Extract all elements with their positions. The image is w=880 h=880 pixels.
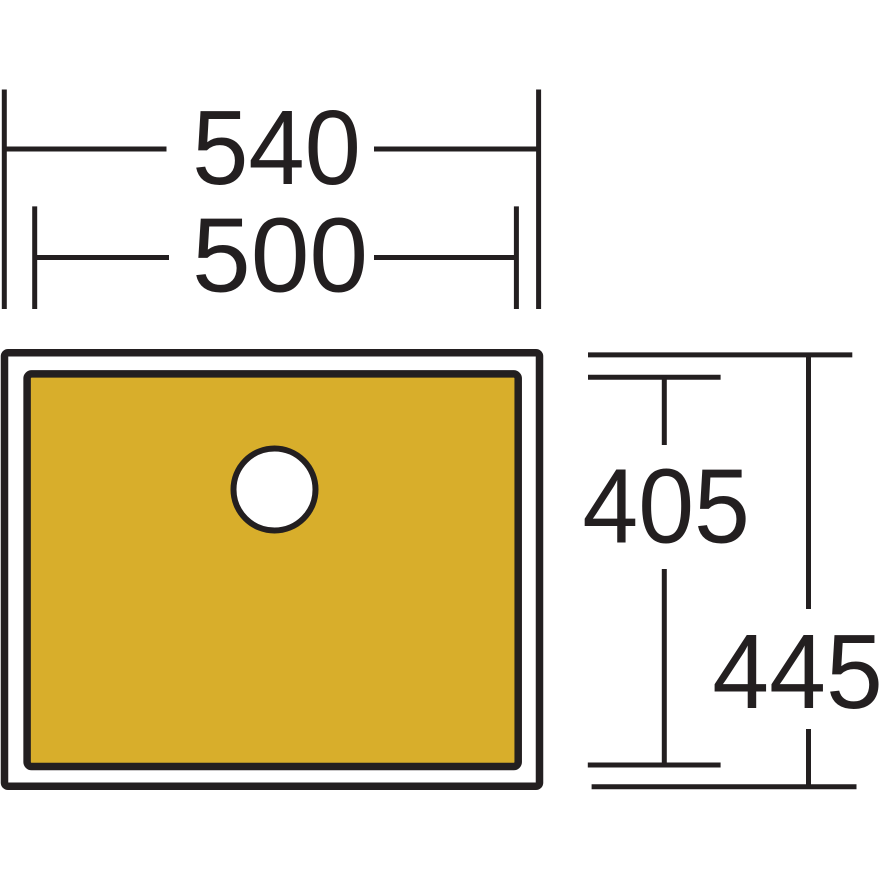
svg-text:445: 445 <box>712 613 880 731</box>
svg-text:405: 405 <box>582 447 750 565</box>
svg-text:500: 500 <box>192 196 368 314</box>
svg-text:540: 540 <box>192 89 361 207</box>
